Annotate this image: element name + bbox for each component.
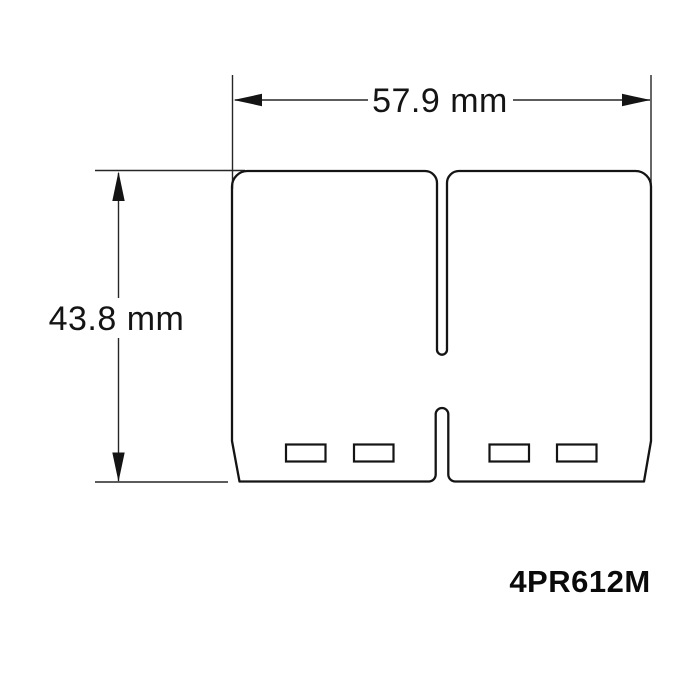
height-dimension-label: 43.8 mm — [49, 300, 185, 338]
mounting-hole-4 — [557, 445, 597, 462]
height-arrow-down-icon — [112, 453, 124, 482]
height-arrow-up-icon — [112, 172, 124, 202]
mounting-hole-1 — [286, 445, 326, 462]
technical-drawing: 57.9 mm 43.8 mm 4PR612M — [0, 0, 700, 700]
mounting-hole-3 — [490, 445, 530, 462]
part-number-label: 4PR612M — [509, 564, 650, 599]
width-arrow-right-icon — [622, 94, 651, 106]
drawing-canvas: 57.9 mm 43.8 mm 4PR612M — [0, 0, 700, 700]
width-dimension-label: 57.9 mm — [372, 82, 508, 120]
mounting-holes — [286, 445, 597, 462]
mounting-hole-2 — [354, 445, 394, 462]
reed-petal-outline — [232, 171, 651, 482]
height-dimension: 43.8 mm — [49, 172, 185, 482]
width-dimension: 57.9 mm — [234, 82, 651, 120]
width-arrow-left-icon — [234, 94, 263, 106]
